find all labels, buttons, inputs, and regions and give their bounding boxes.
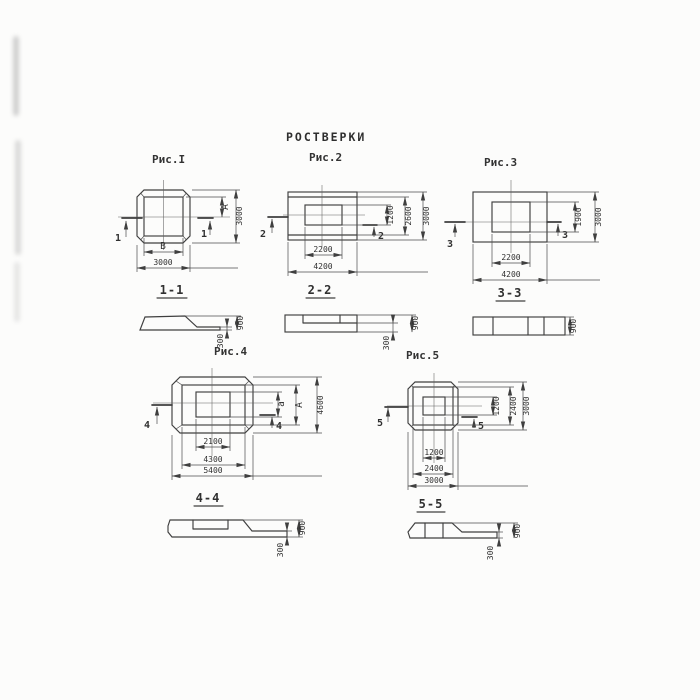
dim-label: 4600 [316, 395, 325, 414]
dim-label: 1200 [386, 205, 395, 224]
dim-label: 900 [513, 524, 522, 539]
figure-3-label: Рис.3 [484, 156, 517, 169]
section-label: 5-5 [419, 497, 444, 511]
dim-label: 1200 [492, 396, 501, 415]
dim-label: 2200 [501, 253, 520, 262]
dim-label: 900 [411, 316, 420, 331]
cut-label: 2 [260, 229, 266, 240]
dim-label: 300 [486, 546, 495, 561]
fig2-center-lines [283, 185, 365, 247]
scan-artifact [15, 140, 21, 255]
dim-label: 2600 [404, 206, 413, 225]
section-profile [473, 317, 565, 335]
dim-label: 3000 [153, 258, 172, 267]
dim-label: 1200 [424, 448, 443, 457]
scan-artifact [13, 36, 19, 116]
dim-label: 2400 [509, 396, 518, 415]
figure-3-plan: 3 3 1900 3000 2200 [445, 175, 630, 290]
dim-label: 3000 [235, 206, 244, 225]
fig1-dim-right-outer: 3000 [192, 190, 244, 243]
fig2-cut-mark-right: 2 [363, 225, 384, 242]
dim-label: 3000 [424, 476, 443, 485]
cut-label: 4 [276, 421, 282, 432]
dim-label: 900 [569, 319, 578, 334]
cut-label: 1 [201, 229, 207, 240]
s22-dims: 300 900 [357, 315, 420, 350]
dim-label: 2200 [313, 245, 332, 254]
section-profile [168, 520, 287, 537]
dim-label: 900 [298, 521, 307, 536]
fig2-cut-mark-left: 2 [260, 217, 288, 240]
figure-2-plan: 2 2 1200 2600 3000 220 [250, 175, 435, 285]
scanned-drawing-sheet: РОСТВЕРКИ Рис.I Рис.2 Рис.3 Рис.4 Рис.5 … [0, 0, 700, 700]
dim-label: 4200 [501, 270, 520, 279]
fig5-cut-mark-left: 5 [377, 407, 408, 429]
scan-artifact [14, 262, 20, 322]
dim-label: 300 [216, 334, 225, 349]
fig2-outline [288, 192, 357, 240]
figure-5-plan: 5 5 1200 2400 3000 120 [370, 360, 570, 505]
dim-label: 300 [382, 336, 391, 351]
dim-label: а [276, 401, 287, 407]
s33-dims: 900 [565, 317, 578, 335]
figure-1-label: Рис.I [152, 153, 185, 166]
figure-4-plan: 4 4 а А 4600 2100 [125, 360, 365, 500]
fig4-dim-bottom-outer: 5400 [172, 435, 322, 480]
fig4-dim-right-inner: а [230, 392, 287, 417]
fig4-dim-right-outer: 4600 [253, 377, 325, 433]
fig4-dim-bottom-inner: 2100 [196, 419, 230, 451]
figure-2-label: Рис.2 [309, 151, 342, 164]
dim-label: 900 [236, 316, 245, 331]
fig4-cut-mark-left: 4 [144, 405, 172, 431]
cut-label: 3 [562, 230, 568, 241]
fig2-dim-bottom-inner: 2200 [305, 227, 342, 259]
dim-label: 4200 [313, 262, 332, 271]
cut-label: 5 [478, 421, 484, 432]
dim-label: В [160, 241, 166, 252]
dim-label: 3000 [522, 396, 531, 415]
s11-dims: 900 300 [185, 316, 245, 349]
dim-label: 4300 [203, 455, 222, 464]
cut-label: 1 [115, 233, 121, 244]
cut-label: 4 [144, 420, 150, 431]
fig4-outline [172, 377, 253, 433]
dim-label: 2100 [203, 437, 222, 446]
cut-label: 5 [377, 418, 383, 429]
s55-dims: 300 900 [452, 523, 522, 560]
fig4-cut-mark-right: 4 [260, 415, 282, 432]
fig1-cut-mark-right: 1 [198, 218, 213, 240]
s44-dims: 300 900 [243, 520, 307, 557]
dim-label: 2400 [424, 464, 443, 473]
fig4-dim-right-mid: А [245, 385, 305, 425]
section-label: 2-2 [308, 283, 333, 297]
section-label: 4-4 [196, 491, 221, 505]
dim-label: 3000 [422, 206, 431, 225]
page-title: РОСТВЕРКИ [286, 130, 366, 144]
fig3-cut-mark-left: 3 [445, 222, 465, 250]
section-profile [140, 316, 220, 330]
section-label: 1-1 [160, 283, 185, 297]
section-2-2: 2-2 300 900 [275, 280, 435, 355]
fig5-dim-bottom-outer: 3000 [408, 432, 528, 490]
section-5-5: 5-5 300 900 [395, 495, 545, 570]
section-3-3: 3-3 900 [445, 282, 610, 352]
fig1-dim-bottom-inner: В [144, 238, 183, 256]
section-profile [285, 315, 357, 332]
fig3-outline [473, 192, 547, 242]
fig1-dim-bottom-outer: 3000 [137, 245, 238, 272]
fig1-dim-right-inner: А [186, 197, 231, 217]
section-label: 3-3 [498, 286, 523, 300]
dim-label: 300 [276, 543, 285, 558]
section-1-1: 1-1 900 300 [110, 280, 270, 355]
section-4-4: 4-4 300 900 [150, 490, 320, 570]
cut-label: 3 [447, 239, 453, 250]
dim-label: А [294, 402, 305, 408]
fig2-dim-bottom-outer: 4200 [288, 242, 428, 276]
dim-label: А [220, 204, 231, 210]
fig3-dim-right-inner: 1900 [530, 202, 583, 232]
dim-label: 5400 [203, 466, 222, 475]
fig3-cut-mark-right: 3 [547, 222, 568, 241]
cut-label: 2 [378, 231, 384, 242]
dim-label: 1900 [574, 207, 583, 226]
section-profile [408, 523, 497, 538]
dim-label: 3000 [594, 207, 603, 226]
fig2-dim-right-mid: 2600 [357, 197, 413, 235]
fig1-cut-mark-left: 1 [115, 218, 142, 244]
